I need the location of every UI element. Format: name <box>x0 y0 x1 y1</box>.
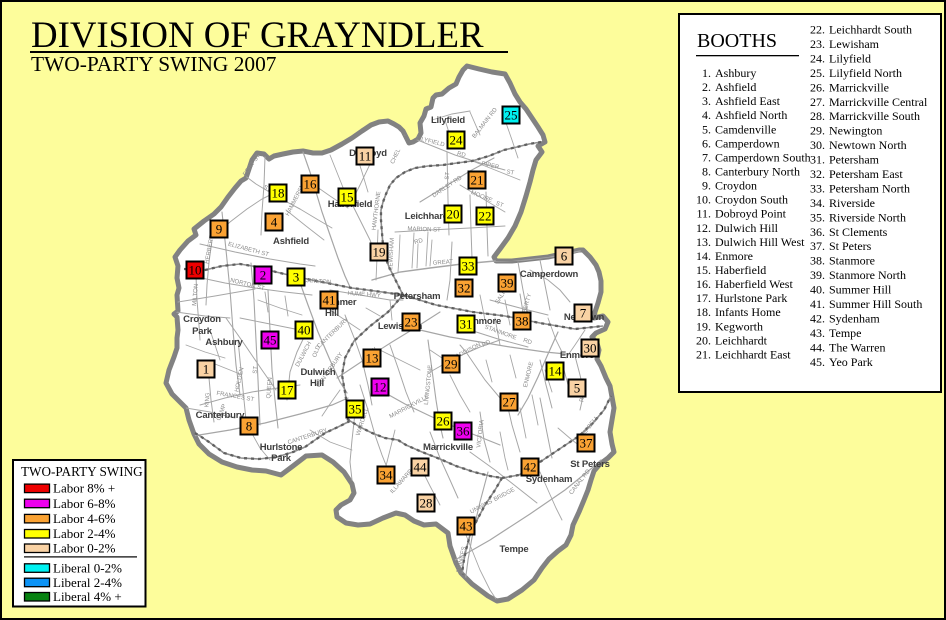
svg-text:18.: 18. <box>696 305 711 319</box>
svg-text:26: 26 <box>437 414 451 429</box>
svg-text:27.: 27. <box>810 95 825 109</box>
svg-text:18: 18 <box>272 186 285 201</box>
svg-text:11.: 11. <box>696 207 711 221</box>
svg-text:42: 42 <box>524 460 537 475</box>
svg-text:Ashfield: Ashfield <box>715 80 756 94</box>
svg-text:21: 21 <box>471 173 484 188</box>
svg-text:38: 38 <box>516 314 529 329</box>
svg-text:5: 5 <box>574 381 581 396</box>
svg-text:Hill: Hill <box>325 308 339 319</box>
svg-text:26.: 26. <box>810 80 825 94</box>
svg-text:17.: 17. <box>696 291 711 305</box>
svg-text:40.: 40. <box>810 283 825 297</box>
svg-text:30.: 30. <box>810 138 825 152</box>
svg-text:16.: 16. <box>696 277 711 291</box>
svg-text:Labor 4-6%: Labor 4-6% <box>53 511 116 526</box>
svg-text:34: 34 <box>380 468 394 483</box>
svg-text:9: 9 <box>216 222 223 237</box>
svg-text:Petersham: Petersham <box>829 153 880 167</box>
svg-text:10: 10 <box>189 263 202 278</box>
svg-text:Camperdown South: Camperdown South <box>715 150 811 164</box>
svg-text:ST: ST <box>445 172 452 180</box>
svg-text:25: 25 <box>505 108 518 123</box>
svg-text:Sydenham: Sydenham <box>829 312 880 326</box>
svg-text:23.: 23. <box>810 37 825 51</box>
svg-text:Leichhardt South: Leichhardt South <box>829 23 912 37</box>
svg-text:Newington: Newington <box>829 124 882 138</box>
svg-text:40: 40 <box>298 323 311 338</box>
svg-text:20: 20 <box>447 207 460 222</box>
svg-text:The Warren: The Warren <box>829 340 885 354</box>
svg-text:Ashbury: Ashbury <box>715 66 756 80</box>
svg-text:7.: 7. <box>702 150 711 164</box>
svg-text:19.: 19. <box>696 319 711 333</box>
svg-text:Riverside North: Riverside North <box>829 210 906 224</box>
svg-text:21.: 21. <box>696 347 711 361</box>
svg-text:13.: 13. <box>696 235 711 249</box>
svg-text:Petersham East: Petersham East <box>829 167 903 181</box>
svg-text:Croydon South: Croydon South <box>715 193 788 207</box>
svg-text:30: 30 <box>584 341 597 356</box>
svg-text:35: 35 <box>349 402 362 417</box>
svg-text:Dulwich: Dulwich <box>300 367 335 378</box>
svg-text:33.: 33. <box>810 181 825 195</box>
svg-text:Tempe: Tempe <box>500 544 529 555</box>
svg-text:27: 27 <box>503 395 517 410</box>
svg-text:Leichhardt: Leichhardt <box>715 333 768 347</box>
svg-text:BOOTHS: BOOTHS <box>697 30 777 52</box>
svg-text:10.: 10. <box>696 193 711 207</box>
svg-text:41: 41 <box>323 293 336 308</box>
svg-text:Stanmore North: Stanmore North <box>829 268 906 282</box>
svg-text:36: 36 <box>457 424 471 439</box>
svg-text:St Peters: St Peters <box>570 459 609 470</box>
svg-text:6.: 6. <box>702 136 711 150</box>
svg-text:37: 37 <box>580 436 594 451</box>
svg-text:Labor 2-4%: Labor 2-4% <box>53 526 116 541</box>
svg-text:Labor 8% +: Labor 8% + <box>53 481 115 496</box>
svg-text:35.: 35. <box>810 210 825 224</box>
svg-text:DIVISION OF GRAYNDLER: DIVISION OF GRAYNDLER <box>31 14 484 55</box>
svg-text:41.: 41. <box>810 297 825 311</box>
svg-text:39: 39 <box>501 276 514 291</box>
svg-text:3: 3 <box>293 270 300 285</box>
svg-text:6: 6 <box>561 249 568 264</box>
svg-text:Hurlstone: Hurlstone <box>260 442 303 453</box>
svg-text:4.: 4. <box>702 108 711 122</box>
svg-text:24.: 24. <box>810 51 825 65</box>
svg-text:Liberal 2-4%: Liberal 2-4% <box>53 575 122 590</box>
svg-text:14: 14 <box>549 364 563 379</box>
svg-text:Camperdown: Camperdown <box>520 269 579 280</box>
svg-text:3.: 3. <box>702 94 711 108</box>
svg-text:Lewisham: Lewisham <box>829 37 880 51</box>
svg-text:MARION ST: MARION ST <box>407 226 441 233</box>
svg-text:8.: 8. <box>702 165 711 179</box>
svg-text:20.: 20. <box>696 333 711 347</box>
svg-text:7: 7 <box>580 306 587 321</box>
svg-text:St Peters: St Peters <box>829 239 872 253</box>
svg-text:36.: 36. <box>810 225 825 239</box>
svg-text:45: 45 <box>264 333 277 348</box>
svg-text:29.: 29. <box>810 124 825 138</box>
svg-text:Marrickville: Marrickville <box>423 442 473 453</box>
svg-text:29: 29 <box>445 357 458 372</box>
svg-text:St Clements: St Clements <box>829 225 888 239</box>
svg-text:Dulwich Hill West: Dulwich Hill West <box>715 235 805 249</box>
svg-text:Lilyfield: Lilyfield <box>829 51 871 65</box>
svg-text:Infants Home: Infants Home <box>715 305 781 319</box>
svg-text:Summer Hill: Summer Hill <box>829 283 892 297</box>
svg-text:17: 17 <box>281 383 295 398</box>
svg-text:Marrickville South: Marrickville South <box>829 109 920 123</box>
svg-text:2.: 2. <box>702 80 711 94</box>
svg-text:TWO-PARTY SWING: TWO-PARTY SWING <box>21 464 143 479</box>
svg-text:22.: 22. <box>810 23 825 37</box>
svg-text:37.: 37. <box>810 239 825 253</box>
svg-text:32.: 32. <box>810 167 825 181</box>
svg-text:45.: 45. <box>810 355 825 369</box>
svg-text:Stanmore: Stanmore <box>829 254 875 268</box>
svg-text:ST: ST <box>253 366 260 374</box>
svg-text:16: 16 <box>304 177 318 192</box>
svg-text:31: 31 <box>460 317 473 332</box>
svg-text:Haberfield West: Haberfield West <box>715 277 793 291</box>
svg-text:34.: 34. <box>810 196 825 210</box>
svg-text:42.: 42. <box>810 312 825 326</box>
svg-text:Park: Park <box>192 326 213 337</box>
svg-text:15: 15 <box>341 190 354 205</box>
svg-text:22: 22 <box>479 209 492 224</box>
svg-text:Croydon: Croydon <box>183 314 221 325</box>
svg-text:14.: 14. <box>696 249 711 263</box>
svg-text:Labor 0-2%: Labor 0-2% <box>53 541 116 556</box>
svg-text:2: 2 <box>260 268 267 283</box>
svg-text:43: 43 <box>460 519 473 534</box>
svg-text:25.: 25. <box>810 66 825 80</box>
svg-text:Camdenville: Camdenville <box>715 122 776 136</box>
svg-text:TWO-PARTY SWING 2007: TWO-PARTY SWING 2007 <box>31 52 277 76</box>
svg-text:Marrickville Central: Marrickville Central <box>829 95 928 109</box>
svg-text:Newtown North: Newtown North <box>829 138 907 152</box>
svg-text:19: 19 <box>373 245 386 260</box>
svg-text:Tempe: Tempe <box>829 326 861 340</box>
svg-text:31.: 31. <box>810 153 825 167</box>
svg-text:Marrickville: Marrickville <box>829 80 889 94</box>
svg-text:44: 44 <box>414 460 428 475</box>
svg-text:Park: Park <box>271 453 292 464</box>
svg-text:Ashfield East: Ashfield East <box>715 94 781 108</box>
svg-text:23: 23 <box>405 315 418 330</box>
svg-text:44.: 44. <box>810 340 825 354</box>
svg-text:Kegworth: Kegworth <box>715 319 763 333</box>
svg-text:15.: 15. <box>696 263 711 277</box>
svg-text:Petersham: Petersham <box>394 291 441 302</box>
svg-text:Canterbury: Canterbury <box>196 410 246 421</box>
svg-text:28: 28 <box>420 496 433 511</box>
svg-text:43.: 43. <box>810 326 825 340</box>
svg-text:Ashfield North: Ashfield North <box>715 108 787 122</box>
svg-text:Dulwich Hill: Dulwich Hill <box>715 221 779 235</box>
svg-text:13: 13 <box>366 351 379 366</box>
svg-text:8: 8 <box>246 419 253 434</box>
svg-text:Haberfield: Haberfield <box>715 263 766 277</box>
svg-text:33: 33 <box>462 259 475 274</box>
svg-text:12.: 12. <box>696 221 711 235</box>
svg-text:Dobroyd Point: Dobroyd Point <box>715 207 787 221</box>
svg-text:12: 12 <box>374 380 387 395</box>
svg-text:1.: 1. <box>702 66 711 80</box>
svg-text:Summer Hill South: Summer Hill South <box>829 297 922 311</box>
svg-text:Leichhardt East: Leichhardt East <box>715 347 791 361</box>
svg-text:Petersham North: Petersham North <box>829 181 910 195</box>
svg-text:Yeo Park: Yeo Park <box>829 355 873 369</box>
svg-text:Labor 6-8%: Labor 6-8% <box>53 496 116 511</box>
svg-text:Lilyfield: Lilyfield <box>431 115 465 126</box>
svg-text:38.: 38. <box>810 254 825 268</box>
svg-text:39.: 39. <box>810 268 825 282</box>
svg-text:11: 11 <box>359 149 372 164</box>
svg-text:Croydon: Croydon <box>715 179 757 193</box>
svg-text:Ashbury: Ashbury <box>205 337 243 348</box>
svg-text:Riverside: Riverside <box>829 196 875 210</box>
svg-text:Hurlstone Park: Hurlstone Park <box>715 291 787 305</box>
svg-text:28.: 28. <box>810 109 825 123</box>
svg-text:5.: 5. <box>702 122 711 136</box>
svg-text:4: 4 <box>271 215 278 230</box>
svg-text:9.: 9. <box>702 179 711 193</box>
svg-text:Camperdown: Camperdown <box>715 136 780 150</box>
svg-text:Ashfield: Ashfield <box>273 236 309 247</box>
svg-text:1: 1 <box>203 362 210 377</box>
svg-text:32: 32 <box>458 281 471 296</box>
svg-text:Enmore: Enmore <box>715 249 753 263</box>
svg-text:Hill: Hill <box>310 378 324 389</box>
svg-text:Lilyfield North: Lilyfield North <box>829 66 902 80</box>
svg-text:Liberal 0-2%: Liberal 0-2% <box>53 560 122 575</box>
svg-text:Liberal 4% +: Liberal 4% + <box>53 589 122 604</box>
svg-text:24: 24 <box>450 133 464 148</box>
svg-text:Canterbury North: Canterbury North <box>715 165 800 179</box>
